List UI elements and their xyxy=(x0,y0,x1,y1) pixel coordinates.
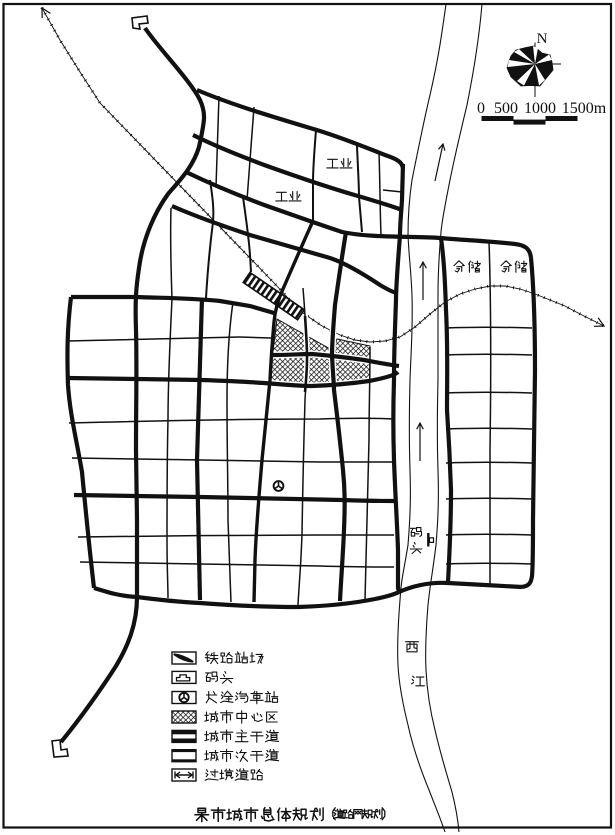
svg-text:N: N xyxy=(537,31,548,47)
svg-text:1500m: 1500m xyxy=(562,100,607,117)
svg-text:0: 0 xyxy=(477,100,485,117)
svg-text:1000: 1000 xyxy=(524,100,556,117)
svg-text:500: 500 xyxy=(494,100,518,117)
